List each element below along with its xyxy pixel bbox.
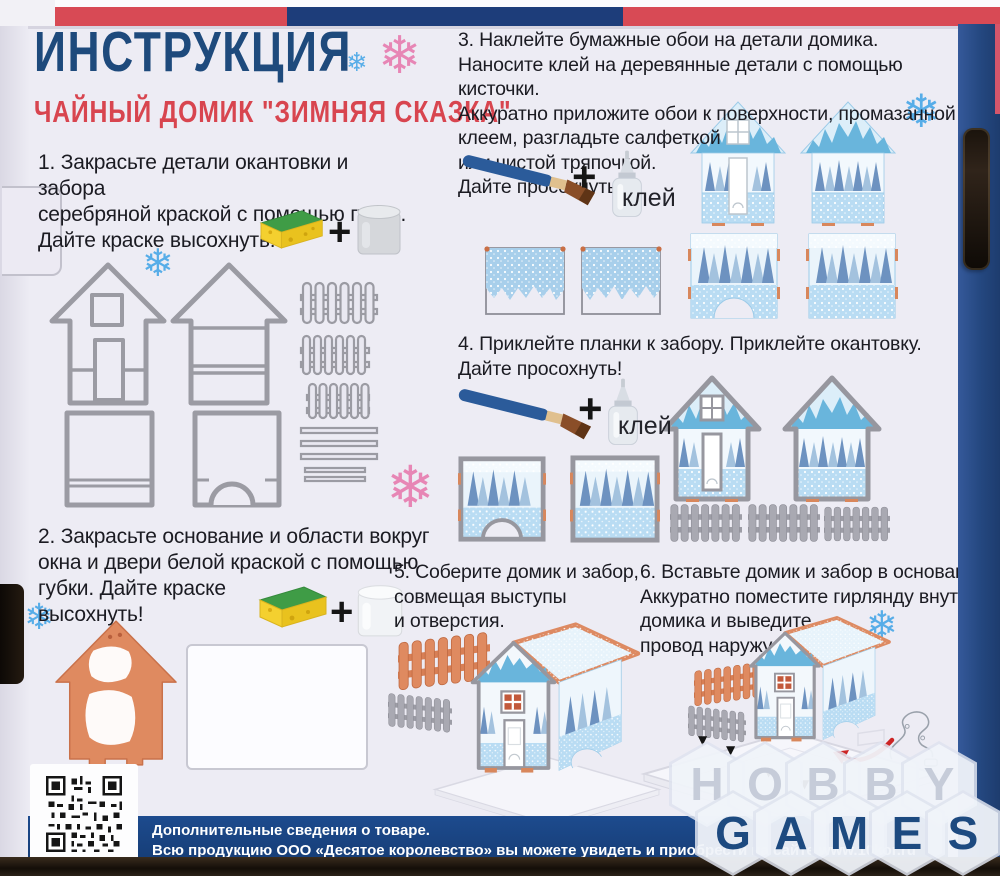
assembled-house-diagram bbox=[462, 608, 644, 790]
step-2-painted-base-panel bbox=[186, 644, 368, 770]
gray-fence-diagram bbox=[388, 681, 452, 746]
edged-base-arch-diagram bbox=[458, 452, 546, 546]
watermark-letter: G bbox=[715, 806, 751, 860]
box-top-strip-red-left bbox=[55, 7, 287, 26]
glue-label: клей bbox=[618, 414, 672, 439]
qr-code-image bbox=[43, 773, 125, 855]
box-back-photo: ИНСТРУКЦИЯ ЧАЙНЫЙ ДОМИК "ЗИМНЯЯ СКАЗКА" … bbox=[0, 0, 1000, 876]
plus-icon: + bbox=[330, 592, 353, 632]
edged-house-back-diagram bbox=[782, 372, 882, 502]
watermark-letter: E bbox=[892, 806, 923, 860]
box-fold-shadow bbox=[28, 26, 1000, 29]
box-top-strip-red-right bbox=[623, 7, 1000, 26]
box-right-slot bbox=[963, 128, 990, 270]
wallpapered-base-diagram bbox=[806, 230, 898, 322]
plus-icon: + bbox=[328, 212, 351, 252]
wallpapered-base-arch-diagram bbox=[688, 230, 780, 322]
plus-icon: + bbox=[572, 156, 597, 198]
box-left-slot bbox=[0, 584, 24, 684]
gray-fence-diagram bbox=[824, 502, 890, 546]
wallpaper-sheet-diagram bbox=[578, 242, 664, 318]
glue-label: клей bbox=[622, 186, 676, 211]
sponge-icon bbox=[248, 206, 326, 251]
gray-fence-diagram bbox=[748, 500, 820, 546]
box-top-left-corner bbox=[0, 0, 55, 26]
photo-top-gap bbox=[0, 0, 1000, 7]
gray-fence-diagram bbox=[670, 500, 742, 546]
edged-base-diagram bbox=[570, 452, 660, 546]
watermark-letter: S bbox=[948, 806, 979, 860]
qr-code bbox=[30, 764, 138, 862]
box-right-edge-red bbox=[995, 24, 1000, 114]
snowflake-icon: ❄ bbox=[378, 30, 422, 82]
page-title: ИНСТРУКЦИЯ bbox=[34, 24, 352, 81]
edged-house-front-diagram bbox=[662, 372, 762, 502]
gray-fence-diagram bbox=[688, 696, 746, 751]
assembled-house-diagram bbox=[742, 604, 894, 756]
step-1-parts-diagram bbox=[45, 256, 450, 514]
wallpaper-sheet-diagram bbox=[482, 242, 568, 318]
watermark-letter: M bbox=[830, 806, 868, 860]
page-subtitle: ЧАЙНЫЙ ДОМИК "ЗИМНЯЯ СКАЗКА" bbox=[34, 96, 511, 127]
watermark-letter: A bbox=[774, 806, 807, 860]
step-4-text: 4. Приклейте планки к забору. Приклейте … bbox=[458, 332, 978, 381]
box-left-edge bbox=[0, 26, 30, 858]
sponge-icon bbox=[246, 582, 330, 630]
plus-icon: + bbox=[578, 388, 603, 430]
silver-paint-jar-icon bbox=[352, 200, 406, 258]
step-2-painted-house-diagram bbox=[52, 612, 180, 772]
box-top-strip-blue bbox=[287, 7, 623, 26]
